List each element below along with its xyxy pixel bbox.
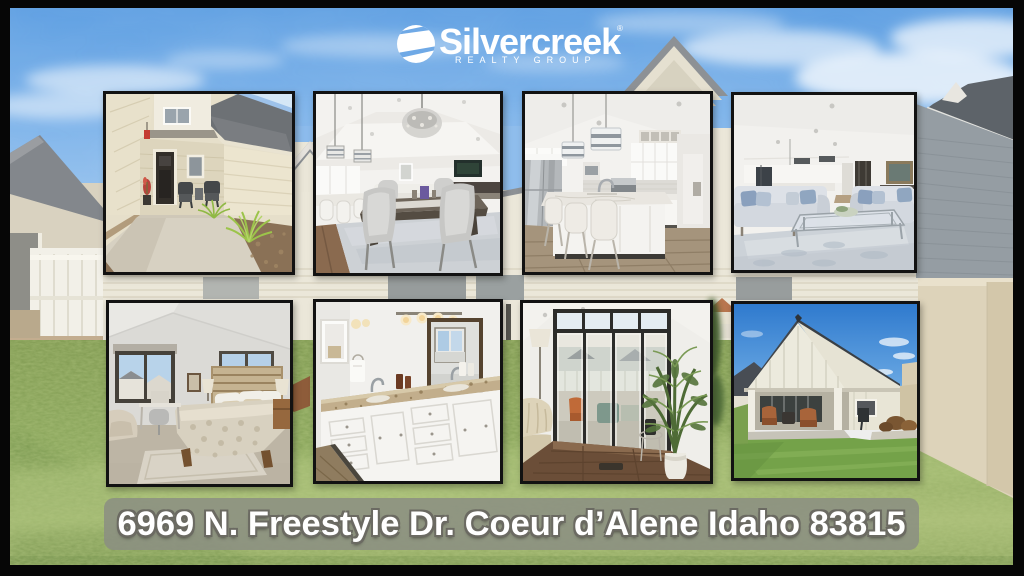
svg-text:REALTY GROUP: REALTY GROUP [455,55,597,65]
svg-text:®: ® [617,24,623,33]
